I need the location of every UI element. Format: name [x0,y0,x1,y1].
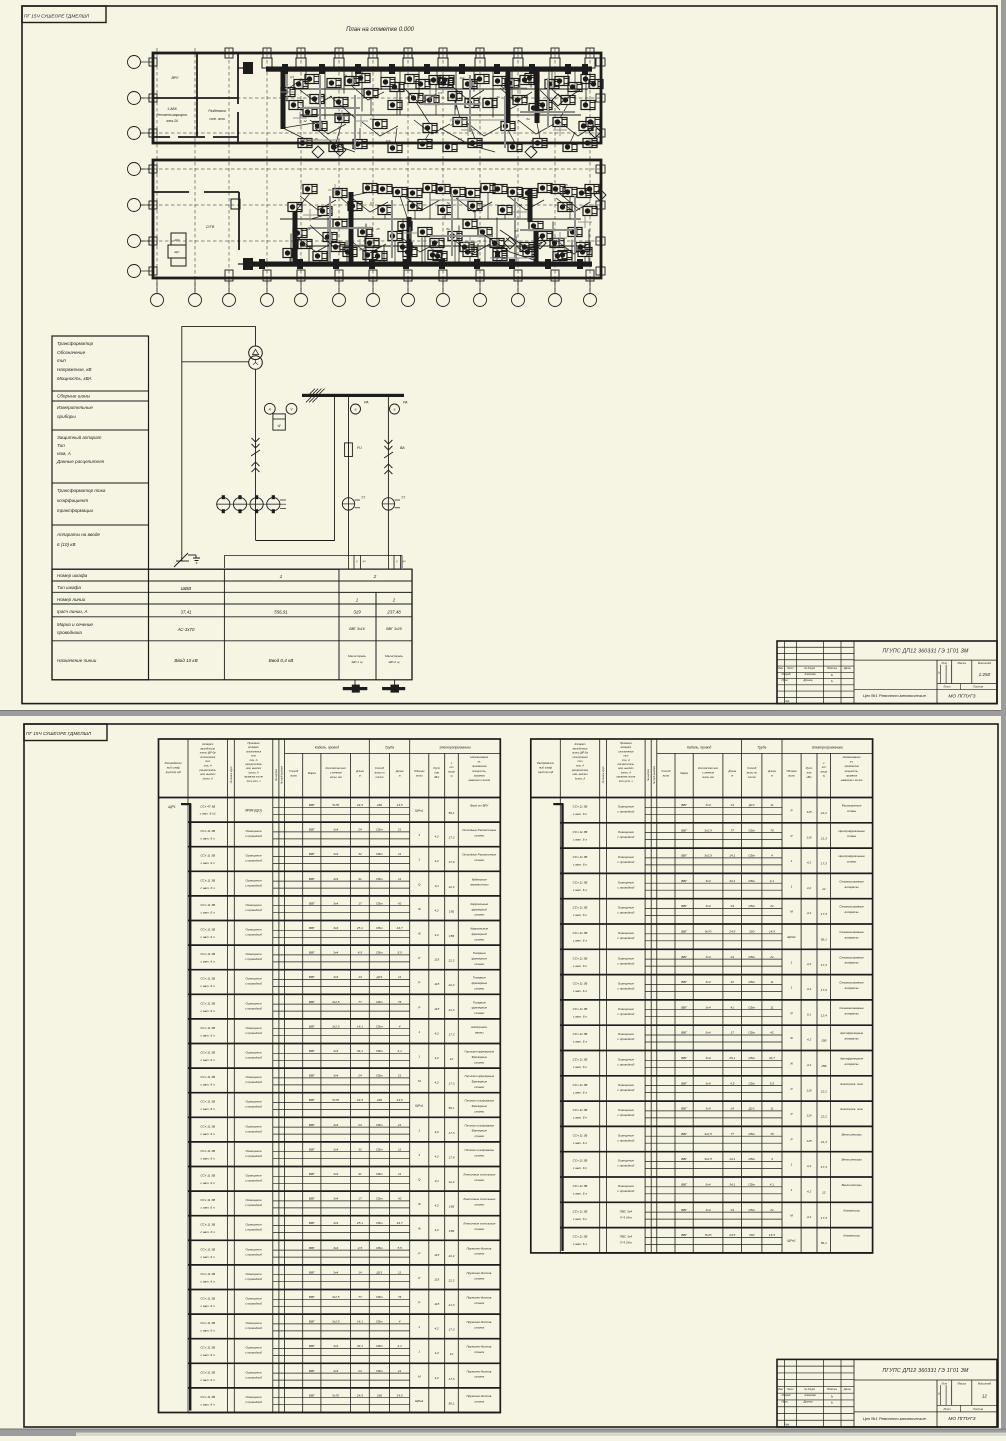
svg-text:22,2: 22,2 [820,1089,827,1093]
svg-text:с авт. 6 л: с авт. 6 л [573,1090,588,1094]
svg-text:22,2: 22,2 [447,1254,454,1258]
svg-text:с авт. 6 п: с авт. 6 п [201,1107,216,1111]
svg-text:41: 41 [731,1005,735,1009]
svg-text:(щиток) щб: (щиток) щб [166,770,182,774]
svg-text:9,1: 9,1 [807,1012,812,1016]
svg-text:станы: станы [847,809,857,813]
svg-text:м: м [399,775,401,778]
svg-text:фрезерные: фрезерные [472,981,488,985]
svg-text:с проводкой: с проводкой [245,1277,262,1281]
svg-text:3х2,5: 3х2,5 [704,1132,712,1136]
svg-text:с авт. 6 п1: с авт. 6 п1 [200,812,216,816]
svg-text:Iоткл, А: Iоткл, А [575,776,585,780]
svg-text:СВт: СВт [376,1123,383,1127]
svg-text:Освещение: Освещение [245,1321,262,1325]
svg-text:4,2: 4,2 [435,1351,440,1355]
svg-text:4,2: 4,2 [807,1164,812,1168]
svg-text:Токарные: Токарные [473,951,487,955]
svg-text:Токарные: Токарные [473,976,487,980]
svg-text:Наименование: Наименование [470,755,488,759]
svg-text:5х70: 5х70 [332,1098,339,1102]
svg-text:с авт. 6 л: с авт. 6 л [573,939,588,943]
svg-text:7а: 7а [530,139,534,143]
svg-text:1: 1 [418,833,420,837]
svg-text:станы: станы [847,834,857,838]
svg-text:Дронов: Дронов [803,1400,814,1404]
svg-text:2: 2 [392,598,396,603]
svg-text:Освещение: Освещение [245,1149,262,1153]
svg-text:с авт. 6 л: с авт. 6 л [201,837,216,841]
svg-text:Чзд: Чзд [785,1422,790,1426]
svg-text:Магистраль: Магистраль [348,654,366,658]
svg-text:Откидные Раскаточные: Откидные Раскаточные [462,828,496,832]
svg-text:Способ: Способ [289,769,298,773]
svg-text:с авт. 6 л: с авт. 6 л [201,1181,216,1185]
svg-text:3х2,5: 3х2,5 [704,854,712,858]
svg-text:11: 11 [770,980,773,984]
svg-text:14: 14 [731,803,735,807]
svg-text:тип: тип [623,755,629,758]
svg-text:FU: FU [357,446,362,450]
svg-text:5х70: 5х70 [705,1233,712,1237]
svg-text:ВВГ: ВВГ [309,828,315,832]
svg-text:ном, выключ: ном, выключ [246,767,262,770]
svg-text:22,2: 22,2 [820,1115,827,1119]
svg-text:Ж: Ж [417,1227,421,1231]
svg-text:ВВГ: ВВГ [681,1107,687,1111]
svg-text:ЩРа1: ЩРа1 [415,1399,424,1403]
svg-text:расцепитель: расцепитель [617,763,635,766]
svg-text:Способ: Способ [375,766,384,770]
svg-text:3х4: 3х4 [333,1197,338,1201]
svg-text:ном: ном [807,772,812,775]
svg-text:ВВГ: ВВГ [309,877,315,881]
svg-text:с проводкой: с проводкой [617,936,634,940]
svg-text:с проводкой: с проводкой [245,1056,262,1060]
svg-text:ПГ 15Ч СУШЕОРЕ ГДМЕЛШЛ: ПГ 15Ч СУШЕОРЕ ГДМЕЛШЛ [24,14,90,19]
svg-text:РА: РА [403,401,408,405]
svg-text:24,5: 24,5 [356,1098,363,1102]
svg-text:ный шкаф: ный шкаф [167,766,181,770]
svg-text:15Б: 15Б [821,1064,826,1068]
svg-text:76: 76 [398,1000,402,1004]
svg-text:Анодировоч.: Анодировоч. [470,1025,488,1029]
svg-text:СВт: СВт [748,1183,755,1187]
svg-text:21,3: 21,3 [820,836,827,840]
svg-text:с проводкой: с проводкой [617,987,634,991]
svg-text:ВВГ: ВВГ [309,926,315,930]
svg-text:Длина: Длина [395,769,404,773]
svg-text:ВВГ: ВВГ [309,1369,315,1373]
svg-text:4,2: 4,2 [435,1130,440,1134]
svg-text:4,2: 4,2 [807,1038,812,1042]
svg-text:ДУ1: ДУ1 [748,1107,755,1111]
svg-text:с авт. 6 п: с авт. 6 п [573,913,588,917]
svg-text:12,4: 12,4 [448,1180,454,1184]
svg-text:СВт: СВт [376,1049,383,1053]
svg-text:11: 11 [398,852,401,856]
svg-text:Плоские шлифовальн: Плоские шлифовальн [464,1099,494,1103]
svg-text:Освещение: Освещение [245,854,262,858]
svg-text:исп: исп [449,766,454,769]
svg-text:Освещение: Освещение [618,982,635,986]
svg-text:аппараты: аппараты [845,935,860,939]
svg-text:1: 1 [791,859,793,863]
svg-text:Ленточные точильные: Ленточные точильные [462,1173,495,1177]
svg-text:Номер шкафа: Номер шкафа [57,573,88,578]
svg-text:21: 21 [397,828,402,832]
svg-text:ССч 11 3В: ССч 11 3В [573,805,588,809]
svg-text:ССч 11 3В: ССч 11 3В [200,1001,215,1005]
svg-text:Раздевалка: Раздевалка [208,109,225,113]
svg-text:Рентгено-маркиров.: Рентгено-маркиров. [156,113,187,117]
svg-text:3х2,5: 3х2,5 [332,1024,340,1028]
svg-text:ССч 11 3В: ССч 11 3В [573,1108,588,1112]
svg-text:ВВГ: ВВГ [309,852,315,856]
svg-text:Освещение: Освещение [618,1058,635,1062]
svg-text:3х4: 3х4 [366,182,371,186]
svg-text:СВт: СВт [748,1081,755,1085]
svg-text:ССч 11 3В: ССч 11 3В [200,1297,215,1301]
svg-text:24: 24 [357,1369,362,1373]
svg-text:мощность,: мощность, [472,770,486,773]
svg-text:34,1: 34,1 [357,1049,363,1053]
svg-text:Подпись: Подпись [827,666,838,670]
svg-text:Изм: Изм [778,666,783,670]
svg-text:Освещение: Освещение [245,1174,262,1178]
svg-text:12: 12 [518,203,522,207]
svg-text:3х4: 3х4 [564,247,569,251]
svg-text:3х4: 3х4 [706,1056,711,1060]
svg-text:260: 260 [748,930,754,934]
svg-text:Освещение: Освещение [618,830,635,834]
svg-text:с авт. 6 п: с авт. 6 п [201,1009,216,1013]
svg-text:3х4: 3х4 [333,852,338,856]
svg-text:3х4: 3х4 [706,1031,711,1035]
svg-text:ССч 11 3В: ССч 11 3В [573,906,588,910]
svg-text:Освещение: Освещение [245,977,262,981]
svg-text:Фрезерные: Фрезерные [472,1080,488,1084]
svg-text:с проводкой: с проводкой [245,834,262,838]
svg-text:СВт: СВт [748,1005,755,1009]
svg-text:с проводкой: с проводкой [617,860,634,864]
svg-text:СВт: СВт [376,1320,383,1324]
svg-text:Электросв. печи: Электросв. печи [840,1082,863,1086]
svg-text:Номер линии: Номер линии [57,597,86,602]
svg-text:3х4: 3х4 [333,1074,338,1078]
svg-text:3х4: 3х4 [333,1270,338,1274]
svg-text:автоблокир: автоблокир [573,746,588,750]
svg-text:ВВГ: ВВГ [681,1208,687,1212]
svg-text:ССч 11 3В: ССч 11 3В [200,977,215,981]
svg-text:ДУ1: ДУ1 [376,1270,383,1274]
svg-text:с проводкой: с проводкой [617,810,634,814]
svg-text:14,1: 14,1 [729,854,735,858]
svg-text:с авт. 6 п: с авт. 6 п [201,1206,216,1210]
svg-text:Освещение: Освещение [245,1272,262,1276]
svg-text:Ж: Ж [789,1062,793,1066]
svg-text:СВт: СВт [376,1147,383,1151]
svg-text:Iост уст, ч: Iост уст, ч [247,779,262,783]
svg-text:4,5: 4,5 [458,137,463,141]
svg-text:ВВГ: ВВГ [681,1031,687,1035]
svg-text:3х4: 3х4 [333,1172,338,1176]
svg-text:фрезерные: фрезерные [472,1006,488,1010]
svg-text:15: 15 [564,183,568,187]
svg-text:14: 14 [731,1107,735,1111]
svg-text:с авт. 6 л: с авт. 6 л [573,837,588,841]
svg-text:a: a [394,408,396,412]
svg-text:с авт. 6 л: с авт. 6 л [573,989,588,993]
svg-text:ВВГ: ВВГ [309,1098,315,1102]
svg-text:ВВГ 3х16: ВВГ 3х16 [349,627,365,631]
svg-text:Цех №1 Ремонтно-механические.: Цех №1 Ремонтно-механические. [863,1416,927,1421]
svg-text:исп: исп [822,766,827,769]
svg-text:СВт: СВт [376,951,383,955]
svg-text:ЩРа1: ЩРа1 [415,1104,424,1108]
svg-text:приемников: приемников [844,765,859,768]
svg-text:17,9: 17,9 [821,988,827,992]
svg-text:станки: станки [474,858,484,862]
svg-text:34,1: 34,1 [357,1344,363,1348]
svg-text:ВВГ: ВВГ [681,879,687,883]
svg-text:СВт: СВт [376,1024,383,1028]
svg-text:4,2: 4,2 [807,987,812,991]
svg-text:3х4: 3х4 [333,1123,338,1127]
svg-text:ПВС 3х4: ПВС 3х4 [620,1209,633,1213]
svg-text:4,2: 4,2 [435,1154,440,1158]
svg-text:ДУ1: ДУ1 [748,803,755,807]
svg-text:СВт: СВт [748,1031,755,1035]
svg-text:115: 115 [807,1114,812,1118]
svg-text:11: 11 [398,1172,401,1176]
svg-text:ПВС 3х4: ПВС 3х4 [620,1235,633,1239]
svg-text:3х4: 3х4 [706,980,711,984]
svg-text:жилы, мм: жилы, мм [701,776,714,779]
svg-text:1: 1 [418,1030,420,1034]
svg-text:4,5: 4,5 [438,91,443,95]
svg-text:Вентиляторы: Вентиляторы [842,1183,863,1187]
svg-text:ЩС: ЩС [175,250,181,254]
svg-text:с проводкой: с проводкой [245,1129,262,1133]
svg-text:СВт: СВт [376,1344,383,1348]
svg-text:Количество жил: Количество жил [326,766,347,770]
svg-text:Освещение: Освещение [618,1083,635,1087]
svg-text:21: 21 [397,1074,402,1078]
svg-text:Дата: Дата [843,666,851,670]
svg-text:станки: станки [474,1060,484,1064]
svg-text:СВт: СВт [376,1369,383,1373]
svg-text:Ж: Ж [789,1036,793,1040]
svg-text:6 (10) кВ: 6 (10) кВ [57,542,76,547]
svg-text:7а: 7а [446,201,450,205]
svg-text:Токарные: Токарные [473,1000,487,1004]
svg-text:Освещение: Освещение [245,1395,262,1399]
svg-text:Пружинно-болтов.: Пружинно-болтов. [467,1296,493,1300]
svg-text:Сельмашиванные: Сельмашиванные [839,930,864,934]
svg-text:ССч 11 3В: ССч 11 3В [200,1395,215,1399]
svg-text:12: 12 [303,119,307,123]
svg-text:3х4: 3х4 [333,1246,338,1250]
svg-text:3х6: 3х6 [294,247,299,251]
svg-text:ВВГ: ВВГ [681,904,687,908]
svg-text:ВРУ: ВРУ [172,76,180,80]
svg-text:ССч 11 3В: ССч 11 3В [200,1321,215,1325]
svg-text:с проводкой: с проводкой [245,1006,262,1010]
svg-text:МО ПГПУГЗ: МО ПГПУГЗ [948,1416,975,1422]
svg-text:жилы: жилы [415,775,423,778]
svg-text:ВА: ВА [400,446,405,450]
svg-text:Лит: Лит [940,661,947,665]
svg-text:ток, А: ток, А [622,758,630,762]
svg-text:3х4: 3х4 [333,975,338,979]
svg-text:260: 260 [748,1233,754,1237]
svg-text:аппарат: аппарат [620,746,632,749]
svg-text:25: 25 [527,74,532,78]
svg-text:Дата: Дата [843,1387,851,1391]
svg-text:с проводкой: с проводкой [245,1203,262,1207]
svg-text:76: 76 [770,1132,774,1136]
svg-text:11: 11 [398,1270,401,1274]
svg-text:ЩРа1: ЩРа1 [787,935,796,939]
svg-text:77: 77 [358,1000,362,1004]
svg-text:с проводкой: с проводкой [245,1326,262,1330]
svg-text:Сельмашиванные: Сельмашиванные [839,1006,864,1010]
svg-text:с авт. 6 л: с авт. 6 л [573,1141,588,1145]
svg-text:Алексеев: Алексеев [803,1393,816,1397]
svg-text:станки: станки [474,962,484,966]
svg-text:Iрасч линии, А: Iрасч линии, А [57,609,88,614]
svg-text:ССч 11 3В: ССч 11 3В [200,1051,215,1055]
svg-text:СВт: СВт [376,1221,383,1225]
svg-text:4,2: 4,2 [807,911,812,915]
svg-text:фрезерный: фрезерный [472,907,488,911]
svg-text:Аппарат: Аппарат [201,742,214,746]
svg-text:станки: станки [474,1085,484,1089]
svg-text:приемников: приемников [472,765,487,768]
svg-text:П 4 3Ум: П 4 3Ум [620,1241,632,1245]
svg-text:навесное и жилое: навесное и жилое [841,779,863,782]
svg-text:жилы по: жилы по [746,772,758,775]
svg-text:115: 115 [434,1302,439,1306]
svg-text:4,1: 4,1 [770,879,775,883]
svg-text:аппарат: аппарат [248,746,260,749]
svg-text:с авт. 6 п: с авт. 6 п [573,1065,588,1069]
svg-text:Освещение: Освещение [618,1108,635,1112]
svg-text:ток, А: ток, А [576,764,584,768]
svg-text:(щиток) щб: (щиток) щб [538,770,554,774]
svg-text:ВВГ: ВВГ [309,1074,315,1078]
svg-text:3х4: 3х4 [706,803,711,807]
svg-text:Освещение: Освещение [245,1223,262,1227]
svg-text:РА: РА [364,401,369,405]
svg-text:Ж: Ж [417,932,421,936]
svg-text:Масштаб: Масштаб [978,1381,991,1385]
svg-text:24,5: 24,5 [728,1233,735,1237]
svg-text:с проводкой: с проводкой [245,883,262,887]
svg-text:8а: 8а [446,227,450,231]
svg-text:14,5: 14,5 [397,1393,403,1397]
svg-text:32: 32 [731,980,735,984]
svg-text:тип: тип [57,358,66,363]
svg-text:24: 24 [730,955,735,959]
svg-text:77: 77 [731,828,735,832]
svg-text:11: 11 [398,877,401,881]
svg-text:Лист: Лист [942,1407,951,1411]
svg-text:ССч 11 3В: ССч 11 3В [573,1159,588,1163]
svg-text:17,9: 17,9 [448,1155,454,1159]
svg-text:Руст: Руст [806,766,813,770]
svg-text:ВВГ: ВВГ [681,980,687,984]
svg-text:3х4: 3х4 [370,117,375,121]
svg-text:5,5: 5,5 [770,1081,775,1085]
svg-text:ССч 11 3В: ССч 11 3В [200,878,215,882]
svg-text:Откидные Раскаточные: Откидные Раскаточные [462,853,496,857]
svg-text:соон. зона: соон. зона [209,117,225,121]
svg-text:Приемник: Приемник [248,741,261,745]
svg-text:ВВГ: ВВГ [309,1024,315,1028]
svg-text:Масштаб: Масштаб [978,661,991,665]
svg-text:с проводкой: с проводкой [617,1164,634,1168]
svg-text:и сечение: и сечение [702,772,714,775]
svg-text:556,91: 556,91 [274,610,288,615]
svg-text:Освещение: Освещение [245,928,262,932]
svg-text:41: 41 [358,877,362,881]
svg-text:Освещение: Освещение [245,1198,262,1202]
svg-text:ССч 11 3В: ССч 11 3В [573,1058,588,1062]
svg-text:мощность,: мощность, [845,770,859,773]
svg-text:станки: станки [474,1178,484,1182]
svg-text:ССч 11 3В: ССч 11 3В [200,1223,215,1227]
svg-text:115: 115 [434,1253,439,1257]
svg-text:1: 1 [791,884,793,888]
svg-text:ЩР1: ЩР1 [168,805,175,809]
svg-text:с авт. 6 л: с авт. 6 л [201,1132,216,1136]
svg-text:4,5: 4,5 [358,951,363,955]
svg-text:56,1: 56,1 [448,1106,454,1110]
svg-text:Карусельные: Карусельные [470,902,488,906]
svg-text:с авт. 6 л: с авт. 6 л [573,1242,588,1246]
svg-text:5х70: 5х70 [332,803,339,807]
svg-text:4,1: 4,1 [397,1344,402,1348]
svg-text:Вентиляторы: Вентиляторы [842,1158,863,1162]
svg-text:с проводкой: с проводкой [245,1228,262,1232]
svg-text:4,1: 4,1 [770,1183,775,1187]
svg-text:Марка: Марка [308,771,316,775]
svg-text:44,7: 44,7 [397,926,403,930]
svg-text:Масса: Масса [958,661,967,665]
svg-text:Изм: Изм [778,1387,783,1391]
svg-text:4,2: 4,2 [435,1327,440,1331]
svg-text:17: 17 [731,1031,735,1035]
svg-text:Пружинно-болтов.: Пружинно-болтов. [467,1394,493,1398]
svg-text:Iоткл, А: Iоткл, А [203,776,213,780]
svg-text:ССч 11 3В: ССч 11 3В [200,829,215,833]
svg-text:с проводкой: с проводкой [245,908,262,912]
svg-text:станок: станок [474,1326,485,1330]
svg-text:4: 4 [771,1157,773,1161]
svg-text:ВВГ: ВВГ [681,1233,687,1237]
svg-text:Ленточные точильные: Ленточные точильные [462,1222,495,1226]
svg-text:ССч 11 3В: ССч 11 3В [200,928,215,932]
svg-text:a: a [355,408,357,412]
svg-text:Листов: Листов [972,685,984,689]
svg-text:Труба: Труба [385,746,394,750]
svg-text:21: 21 [769,1208,774,1212]
svg-text:24: 24 [730,1208,735,1212]
svg-text:Мощность, кВА: Мощность, кВА [57,376,92,381]
svg-text:21: 21 [397,1123,402,1127]
